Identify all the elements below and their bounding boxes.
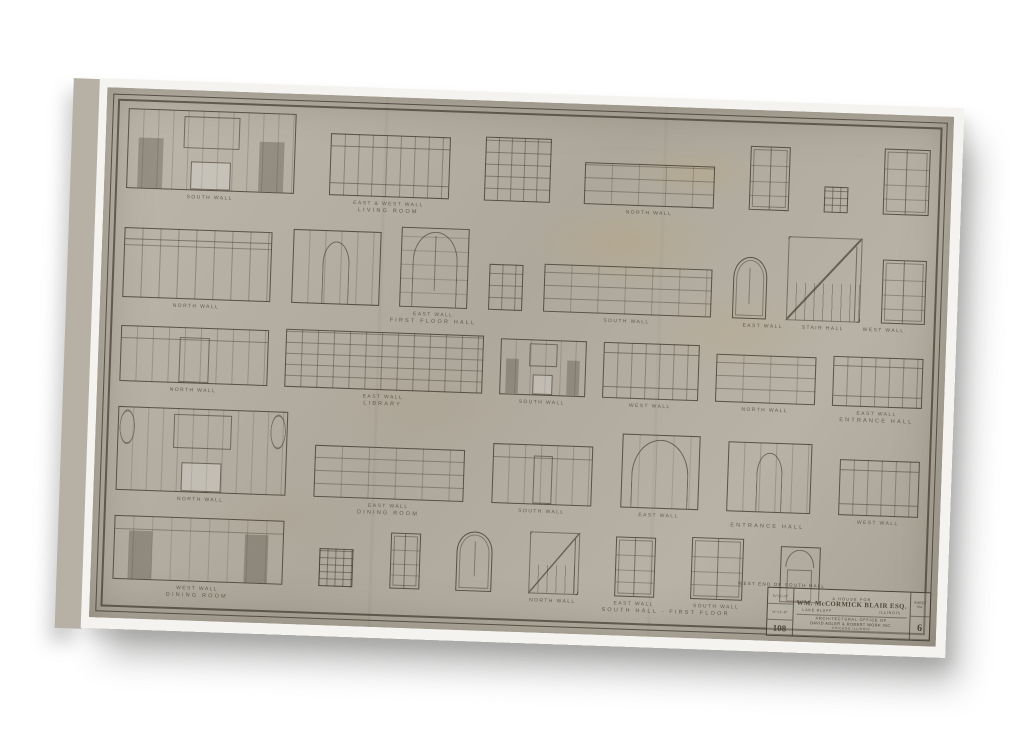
elevation-row-dining-room-entrance-hall: NORTH WALLEAST WALLDINING ROOMSOUTH WALL… <box>115 406 921 535</box>
elevation-item: SOUTH WALL <box>543 264 713 318</box>
big-arch-sketch <box>620 433 701 510</box>
elevation-item: SOUTH WALL <box>690 537 744 601</box>
elevation-item: SOUTH WALL <box>126 108 297 194</box>
elevation-item <box>488 264 524 311</box>
lowwall-sketch <box>314 445 466 502</box>
elevation-item <box>483 137 551 203</box>
elevation-item <box>731 257 767 320</box>
scale-value-1: ¾″=1′-0″ <box>768 588 793 605</box>
door-wall2-sketch <box>112 515 284 585</box>
wall-label: NORTH WALL <box>512 598 592 606</box>
sheet-label: SHEET No. <box>911 593 931 618</box>
double-door-sketch <box>690 537 744 601</box>
elevation-item <box>824 186 849 213</box>
elevation-item: EAST WALL <box>620 433 701 510</box>
elevation-item: NORTH WALL <box>122 227 272 302</box>
product-photo-stage: SOUTH WALLEAST & WEST WALLLIVING ROOMNOR… <box>0 0 1024 750</box>
canvas-print: SOUTH WALLEAST & WEST WALLLIVING ROOMNOR… <box>81 78 965 658</box>
window-sketch <box>319 548 354 587</box>
elevation-item: WEST WALLDINING ROOM <box>112 515 284 585</box>
door-wall-sketch <box>119 324 269 385</box>
panel-wall-sketch <box>329 133 451 199</box>
elevation-item: NORTH WALL <box>528 531 580 595</box>
elevation-item: SOUTH WALL <box>499 338 587 397</box>
panel-wall-sketch <box>602 341 700 400</box>
elevation-item: EAST WALLLIBRARY <box>284 328 484 393</box>
elevation-item: EAST & WEST WALLLIVING ROOM <box>329 133 451 199</box>
location-city: LAKE BLUFF <box>802 608 832 613</box>
arch-door-sketch <box>731 257 767 320</box>
elevation-item: STAIR HALLEAST WALLWEST WALL <box>786 236 863 323</box>
wall-label-left: EAST WALL <box>723 323 783 330</box>
scale-value-2: ⅛″=1′-0″ <box>767 604 792 621</box>
drawing-paper: SOUTH WALLEAST & WEST WALLLIVING ROOMNOR… <box>89 87 954 646</box>
elevation-item <box>319 548 354 587</box>
lowwall-sketch <box>543 264 713 318</box>
door6-sketch <box>614 536 656 597</box>
elevation-item: SOUTH WALL <box>492 443 594 506</box>
elevation-item: EAST WALLENTRANCE HALL <box>832 355 924 408</box>
elevation-item: WEST WALL <box>602 341 700 400</box>
arch-door-sketch <box>455 531 493 592</box>
bookcase-sketch <box>284 328 484 393</box>
arch-wall-sketch <box>122 227 272 302</box>
wall-label: EAST WALL <box>596 511 721 520</box>
elevation-item <box>291 229 382 306</box>
elevation-item: ENTRANCE HALL <box>726 441 812 514</box>
room-label: FIRST FLOOR HALL <box>378 318 487 327</box>
elevation-item: WEST WALL <box>838 459 920 518</box>
wall-label: NORTH WALL <box>545 208 753 220</box>
door-sketch <box>389 533 421 590</box>
panel-wall-sketch <box>838 459 920 518</box>
title-block-sheet-column: SHEET No. 6 <box>909 593 931 641</box>
arch-door-wall-sketch <box>291 229 382 306</box>
elevation-item: EAST WALLDINING ROOM <box>314 445 466 502</box>
job-number: 108 <box>767 620 792 636</box>
stair-small-sketch <box>528 531 580 595</box>
canvas-front-face: SOUTH WALLEAST & WEST WALLLIVING ROOMNOR… <box>81 78 965 658</box>
elevation-item <box>749 146 791 211</box>
elevation-item: NORTH WALL <box>715 353 817 404</box>
location-state: ILLINOIS <box>879 610 900 615</box>
panel-wall-sketch <box>832 355 924 408</box>
wall-label: SOUTH WALL <box>492 315 761 329</box>
mantel-wall-sketch <box>126 108 297 194</box>
elevation-item: NORTH WALL <box>119 324 269 385</box>
door-wall-sketch <box>492 443 594 506</box>
window-sketch <box>824 186 849 213</box>
cabinet-sketch <box>483 137 551 203</box>
wall-label-right: WEST WALL <box>863 328 923 335</box>
lowwall-sketch <box>715 353 817 404</box>
elevation-item <box>389 533 421 590</box>
elevation-item <box>881 260 927 325</box>
sheet-number: 6 <box>910 617 930 641</box>
elevation-item <box>455 531 493 592</box>
elevation-item: NORTH WALL <box>584 162 715 209</box>
cabinet-sketch <box>488 264 524 311</box>
mantel-small-sketch <box>499 338 587 397</box>
elevation-row-first-floor-hall: NORTH WALLEAST WALLFIRST FLOOR HALLSOUTH… <box>122 213 928 342</box>
elevation-item: EAST WALLFIRST FLOOR HALL <box>399 227 470 309</box>
elevation-item: EAST WALLSOUTH HALL - FIRST FLOOR <box>614 536 656 597</box>
door6-sketch <box>883 149 931 217</box>
big-arch-door-sketch <box>399 227 470 309</box>
stair-sketch <box>786 236 863 323</box>
door-sketch <box>749 146 791 211</box>
elevation-item: NORTH WALL <box>116 406 289 496</box>
lowwall-sketch <box>584 162 715 209</box>
door6-sketch <box>881 260 927 325</box>
mantel-arch-wall-sketch <box>116 406 289 496</box>
elevation-rows: SOUTH WALLEAST & WEST WALLLIVING ROOMNOR… <box>112 108 932 624</box>
title-block-main: A HOUSE FOR WM. McCORMICK BLAIR ESQ. LAK… <box>793 589 911 640</box>
title-block: ¾″=1′-0″ ⅛″=1′-0″ 108 A HOUSE FOR WM. Mc… <box>766 587 932 642</box>
title-block-scale-column: ¾″=1′-0″ ⅛″=1′-0″ 108 <box>767 588 794 636</box>
elevation-item <box>883 149 931 217</box>
arch-door-wall-sketch <box>726 441 812 514</box>
